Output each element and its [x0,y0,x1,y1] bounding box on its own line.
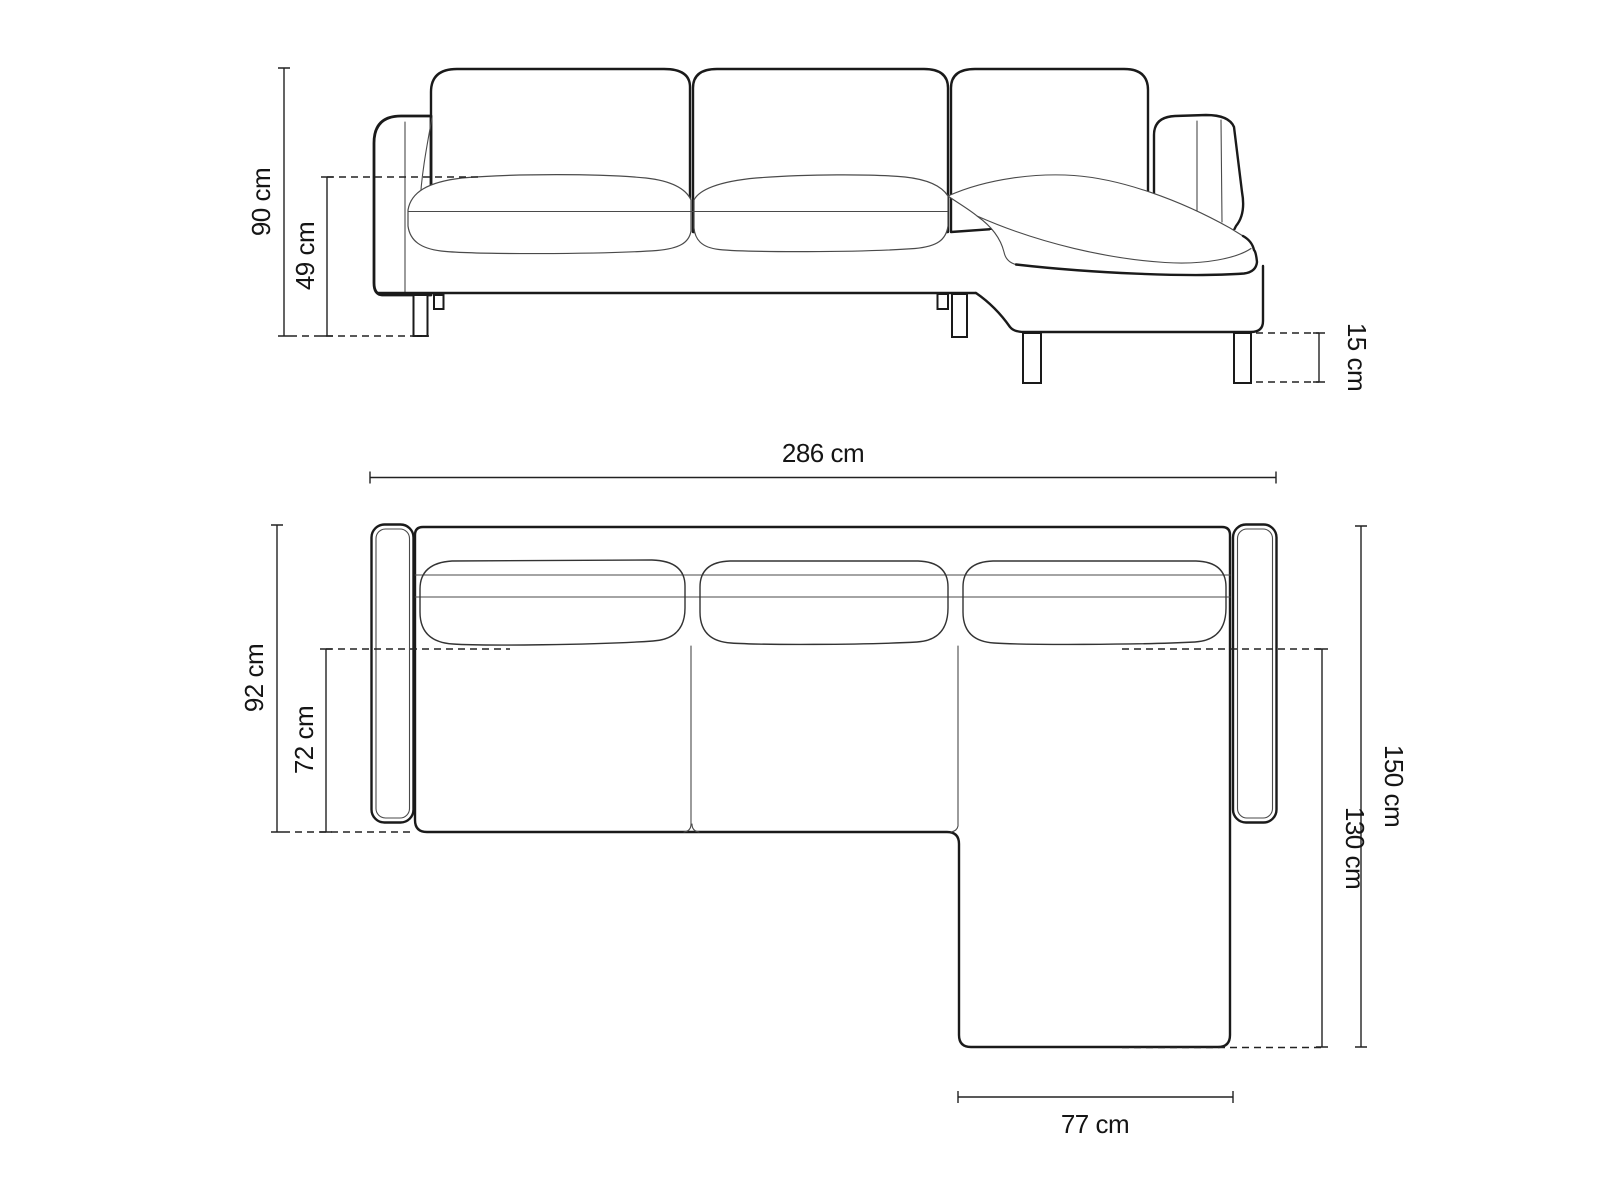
front-left-back-leg [434,295,444,309]
dimension-chaise-width: 77 cm [958,1091,1233,1139]
dimension-chaise-total-depth: 150 cm [1355,526,1409,1047]
front-seat-cushion-1 [408,175,691,254]
front-view-drawing [374,69,1263,383]
dim-label-chaise-section-depth: 130 cm [1340,807,1370,889]
sofa-dimension-diagram: 90 cm 49 cm 15 cm 286 cm 92 cm [0,0,1600,1200]
dim-label-seat-depth: 72 cm [289,706,319,774]
front-chaise-left-leg [1023,333,1041,383]
plan-right-armrest [1233,525,1277,823]
dim-label-seat-height: 49 cm [290,222,320,290]
diagram-canvas: 90 cm 49 cm 15 cm 286 cm 92 cm [0,0,1600,1200]
plan-body [415,527,1230,1047]
front-left-front-leg [414,295,428,336]
dim-label-chaise-width: 77 cm [1061,1109,1129,1139]
top-view-drawing [372,525,1277,1048]
dimension-overall-depth: 92 cm [239,525,283,832]
dim-label-overall-depth: 92 cm [239,644,269,712]
front-chaise-right-leg [1234,333,1251,383]
dimension-overall-height: 90 cm [246,68,290,336]
dim-label-overall-height: 90 cm [246,168,276,236]
front-right-front-leg [952,294,967,337]
dim-label-leg-height: 15 cm [1342,323,1372,391]
dim-label-chaise-total-depth: 150 cm [1379,745,1409,827]
front-right-back-leg [938,294,949,309]
dim-label-overall-width: 286 cm [782,438,864,468]
front-seat-cushion-2 [694,175,948,252]
dimension-leg-height: 15 cm [1256,323,1372,391]
plan-left-armrest [372,525,414,823]
dimension-overall-width: 286 cm [370,438,1276,484]
